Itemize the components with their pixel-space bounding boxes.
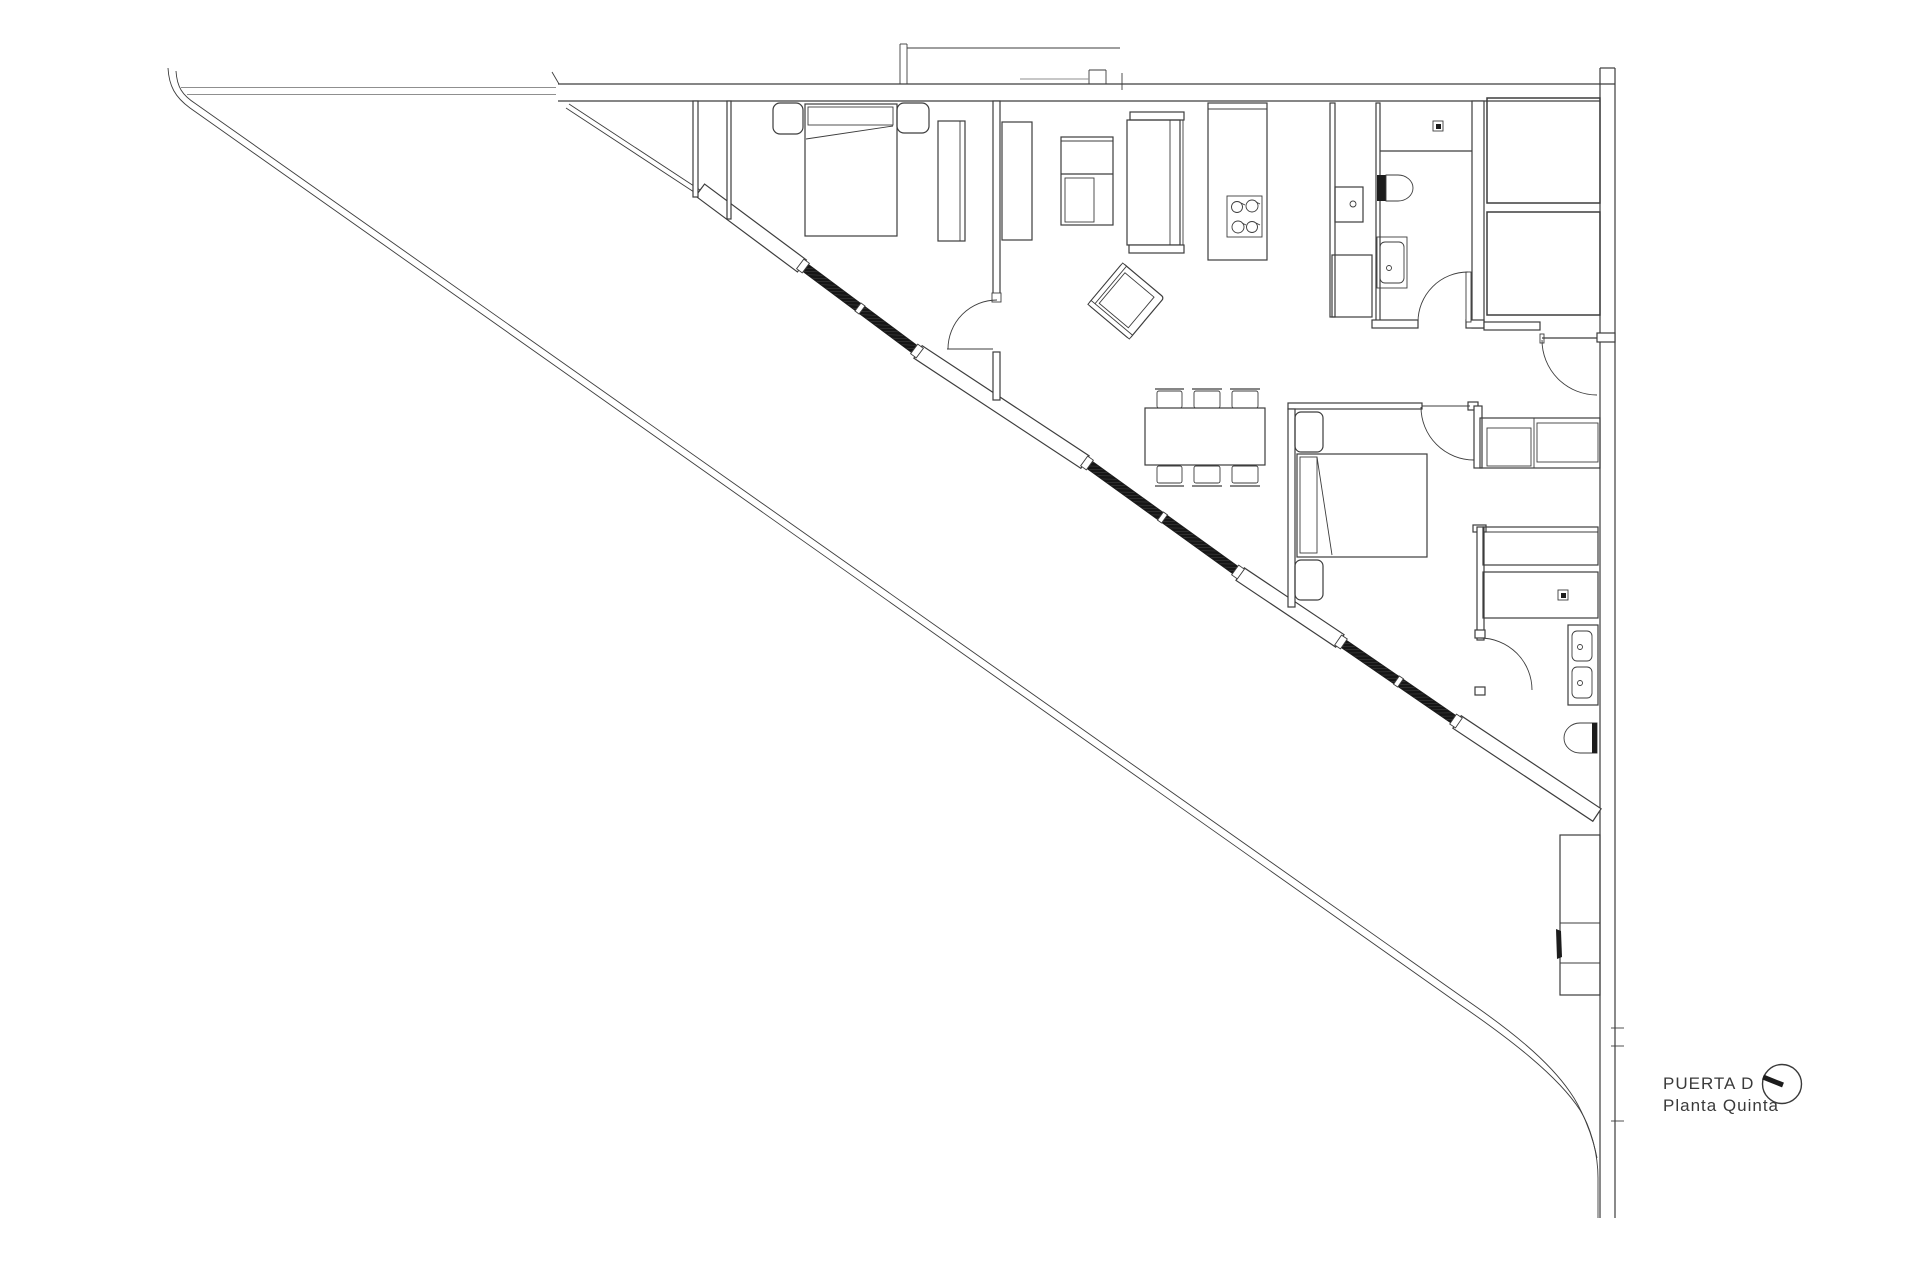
armchair-frame: [1088, 263, 1164, 339]
sofa-seat: [1127, 120, 1180, 245]
bathroom2-door-jamb-bottom: [1475, 687, 1485, 695]
doors: [947, 272, 1597, 690]
floor-plan-drawing: PUERTA D Planta Quinta: [0, 0, 1920, 1280]
interior-walls: [693, 101, 1615, 695]
shower-drain-center: [1436, 124, 1441, 129]
facade-wall-band: [914, 346, 1089, 469]
parapet-diagonal-outer: [168, 68, 1598, 1218]
kitchen-sink: [1335, 187, 1363, 222]
facade-wall-band: [696, 184, 807, 272]
bathroom2-door-jamb-top: [1475, 630, 1485, 638]
closet-side-panel: [1474, 406, 1482, 468]
dining-area: [1145, 389, 1265, 486]
chair-seat: [1157, 391, 1182, 408]
top-wall-left-tick: [552, 72, 559, 84]
door-label: PUERTA D: [1663, 1074, 1754, 1093]
terrace-storage-unit: [1556, 835, 1600, 995]
entry-door-jamb: [1597, 333, 1615, 342]
bedroom1-door-swing: [948, 300, 997, 349]
bedroom1-right-wall-stub: [993, 352, 1000, 400]
dining-chairs-bottom: [1155, 466, 1260, 486]
bathroom-1-fixtures: [1377, 121, 1472, 288]
bathroom1-door-swing: [1418, 272, 1468, 322]
sofa-armrest: [1130, 112, 1184, 120]
service-core: [1487, 98, 1600, 315]
bathroom1-bottom-wall: [1372, 320, 1418, 328]
nightstand: [1295, 412, 1323, 452]
nightstand: [1295, 560, 1323, 600]
chair-seat: [1194, 466, 1220, 483]
faucet-icon: [1578, 681, 1583, 686]
core-shaft-upper: [1487, 98, 1600, 203]
dining-chairs-top: [1155, 389, 1260, 408]
shower-drain-center: [1561, 593, 1566, 598]
bathroom-2-fixtures: [1483, 572, 1598, 753]
floor-plan-sheet: PUERTA D Planta Quinta: [0, 0, 1920, 1280]
bathroom1-left-wall: [1376, 103, 1380, 323]
tall-cabinet: [1002, 122, 1032, 240]
closet-row: [1480, 418, 1600, 468]
bed-sheet-fold: [806, 126, 893, 139]
glass-line: [566, 108, 697, 194]
dining-table: [1145, 408, 1265, 465]
bathroom1-right-wall: [1472, 101, 1484, 328]
nightstand: [773, 103, 803, 134]
bedroom2-top-wall: [1288, 403, 1422, 409]
tv-sideboard-inner: [1065, 178, 1094, 222]
exterior-walls: [552, 44, 1624, 1218]
vanity-unit: [1568, 625, 1598, 705]
glazed-facade: [566, 104, 1601, 821]
closet-inner: [1487, 428, 1531, 466]
north-indicator-needle: [1763, 1077, 1783, 1085]
faucet-icon: [1387, 266, 1392, 271]
bathroom2-door-swing: [1480, 638, 1532, 690]
toilet-tank: [1592, 723, 1597, 753]
armchair-back: [1088, 300, 1133, 339]
armchair: [1088, 263, 1164, 339]
north-indicator-icon: [1763, 1065, 1802, 1104]
double-bed: [805, 104, 897, 236]
floor-label: Planta Quinta: [1663, 1096, 1779, 1115]
storage-cabinet: [1560, 835, 1600, 995]
closet-row-2: [1483, 527, 1598, 565]
bedroom-1-furniture: [773, 103, 965, 241]
shower-tray: [1483, 572, 1598, 618]
kitchen-appliance: [1332, 255, 1372, 317]
bedroom1-right-wall: [993, 101, 1000, 295]
washbasin-bowl: [1380, 242, 1404, 283]
washbasin-unit: [1377, 237, 1407, 288]
terrace-parapet: [168, 68, 1598, 1218]
toilet-bowl: [1386, 175, 1413, 201]
toilet-tank: [1377, 175, 1386, 201]
bedroom1-left-wall-a: [693, 101, 698, 197]
glass-line: [569, 104, 700, 190]
core-bottom-wall: [1484, 322, 1540, 330]
chair-seat: [1232, 466, 1258, 483]
bedroom-2-furniture: [1295, 412, 1427, 600]
bedroom1-left-wall-b: [727, 101, 731, 219]
bedroom2-door-swing: [1421, 407, 1474, 460]
living-room-furniture: [1002, 112, 1184, 339]
kitchen: [1208, 103, 1372, 317]
tv-sideboard: [1061, 137, 1113, 225]
kitchen-island: [1208, 103, 1267, 260]
core-shaft-lower: [1487, 212, 1600, 315]
bedroom2-left-wall: [1288, 409, 1295, 607]
bed-pillows: [808, 107, 893, 125]
bathroom1-door-leaf: [1466, 272, 1471, 322]
storage-door-mark: [1556, 929, 1562, 959]
parapet-diagonal-inner: [176, 71, 1597, 1158]
wardrobe: [938, 121, 965, 241]
entry-closets: [1480, 418, 1600, 565]
burner-icon: [1247, 222, 1258, 233]
closet-inner: [1537, 423, 1598, 462]
burner-icon: [1232, 202, 1243, 213]
faucet-icon: [1578, 645, 1583, 650]
armchair-arm: [1088, 263, 1127, 308]
double-bed: [1297, 454, 1427, 557]
facade-wall-band: [1453, 716, 1601, 821]
nightstand: [897, 103, 929, 133]
chair-seat: [1232, 391, 1258, 408]
bed-sheet-fold: [1317, 457, 1332, 555]
chair-seat: [1194, 391, 1220, 408]
chair-seat: [1157, 466, 1182, 483]
bedroom1-door-cap: [992, 293, 1001, 302]
sofa-armrest: [1129, 245, 1184, 253]
bed-pillows: [1300, 457, 1317, 553]
entry-door-swing: [1542, 340, 1597, 395]
title-block: PUERTA D Planta Quinta: [1663, 1065, 1802, 1116]
faucet-icon: [1350, 201, 1356, 207]
